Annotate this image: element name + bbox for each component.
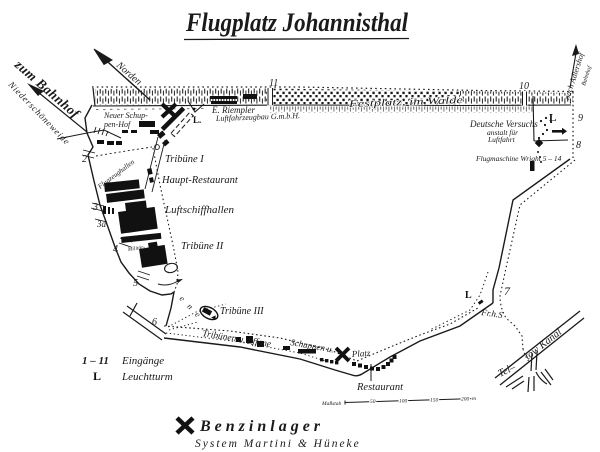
- svg-text:10: 10: [519, 81, 529, 92]
- svg-text:150: 150: [430, 398, 439, 404]
- svg-text:Haupt-Restaurant: Haupt-Restaurant: [161, 175, 239, 186]
- svg-text:5: 5: [133, 278, 138, 289]
- svg-text:Flugplatz Johannisthal: Flugplatz Johannisthal: [185, 8, 409, 37]
- svg-text:L.: L.: [193, 115, 201, 125]
- svg-text:2: 2: [82, 154, 87, 165]
- svg-text:Tribüne II: Tribüne II: [181, 241, 224, 252]
- svg-text:Platz: Platz: [350, 348, 371, 359]
- svg-text:Flugmaschine Wright 5 – 14: Flugmaschine Wright 5 – 14: [475, 154, 562, 163]
- svg-text:Eingänge: Eingänge: [121, 355, 164, 367]
- svg-text:4: 4: [113, 244, 118, 255]
- svg-text:Leuchtturm: Leuchtturm: [121, 371, 173, 383]
- svg-text:50: 50: [370, 399, 376, 405]
- svg-text:Benzinlager: Benzinlager: [199, 418, 324, 435]
- svg-text:L: L: [465, 290, 472, 301]
- svg-text:System Martini & Hüneke: System Martini & Hüneke: [195, 438, 361, 450]
- svg-text:Restaurant: Restaurant: [356, 382, 404, 393]
- svg-text:100: 100: [399, 399, 408, 405]
- svg-text:3a: 3a: [96, 219, 107, 229]
- svg-text:Tribüne I: Tribüne I: [165, 154, 204, 165]
- svg-text:Maßstab: Maßstab: [321, 400, 342, 407]
- svg-text:Luftschiffhallen: Luftschiffhallen: [164, 204, 235, 216]
- svg-text:1 – 11: 1 – 11: [82, 355, 109, 367]
- svg-text:11: 11: [269, 78, 278, 89]
- svg-text:9: 9: [578, 113, 583, 124]
- svg-text:Luftfahrt: Luftfahrt: [487, 135, 516, 144]
- svg-text:m: m: [472, 396, 476, 402]
- svg-text:8: 8: [576, 140, 581, 151]
- svg-text:Neuer Schup-: Neuer Schup-: [103, 111, 148, 120]
- svg-text:pen-Hof: pen-Hof: [103, 120, 132, 129]
- svg-text:200: 200: [461, 397, 470, 403]
- svg-text:7: 7: [504, 284, 511, 298]
- svg-text:Tribüne III: Tribüne III: [220, 306, 264, 317]
- svg-text:L: L: [93, 369, 101, 383]
- svg-text:3: 3: [92, 202, 98, 213]
